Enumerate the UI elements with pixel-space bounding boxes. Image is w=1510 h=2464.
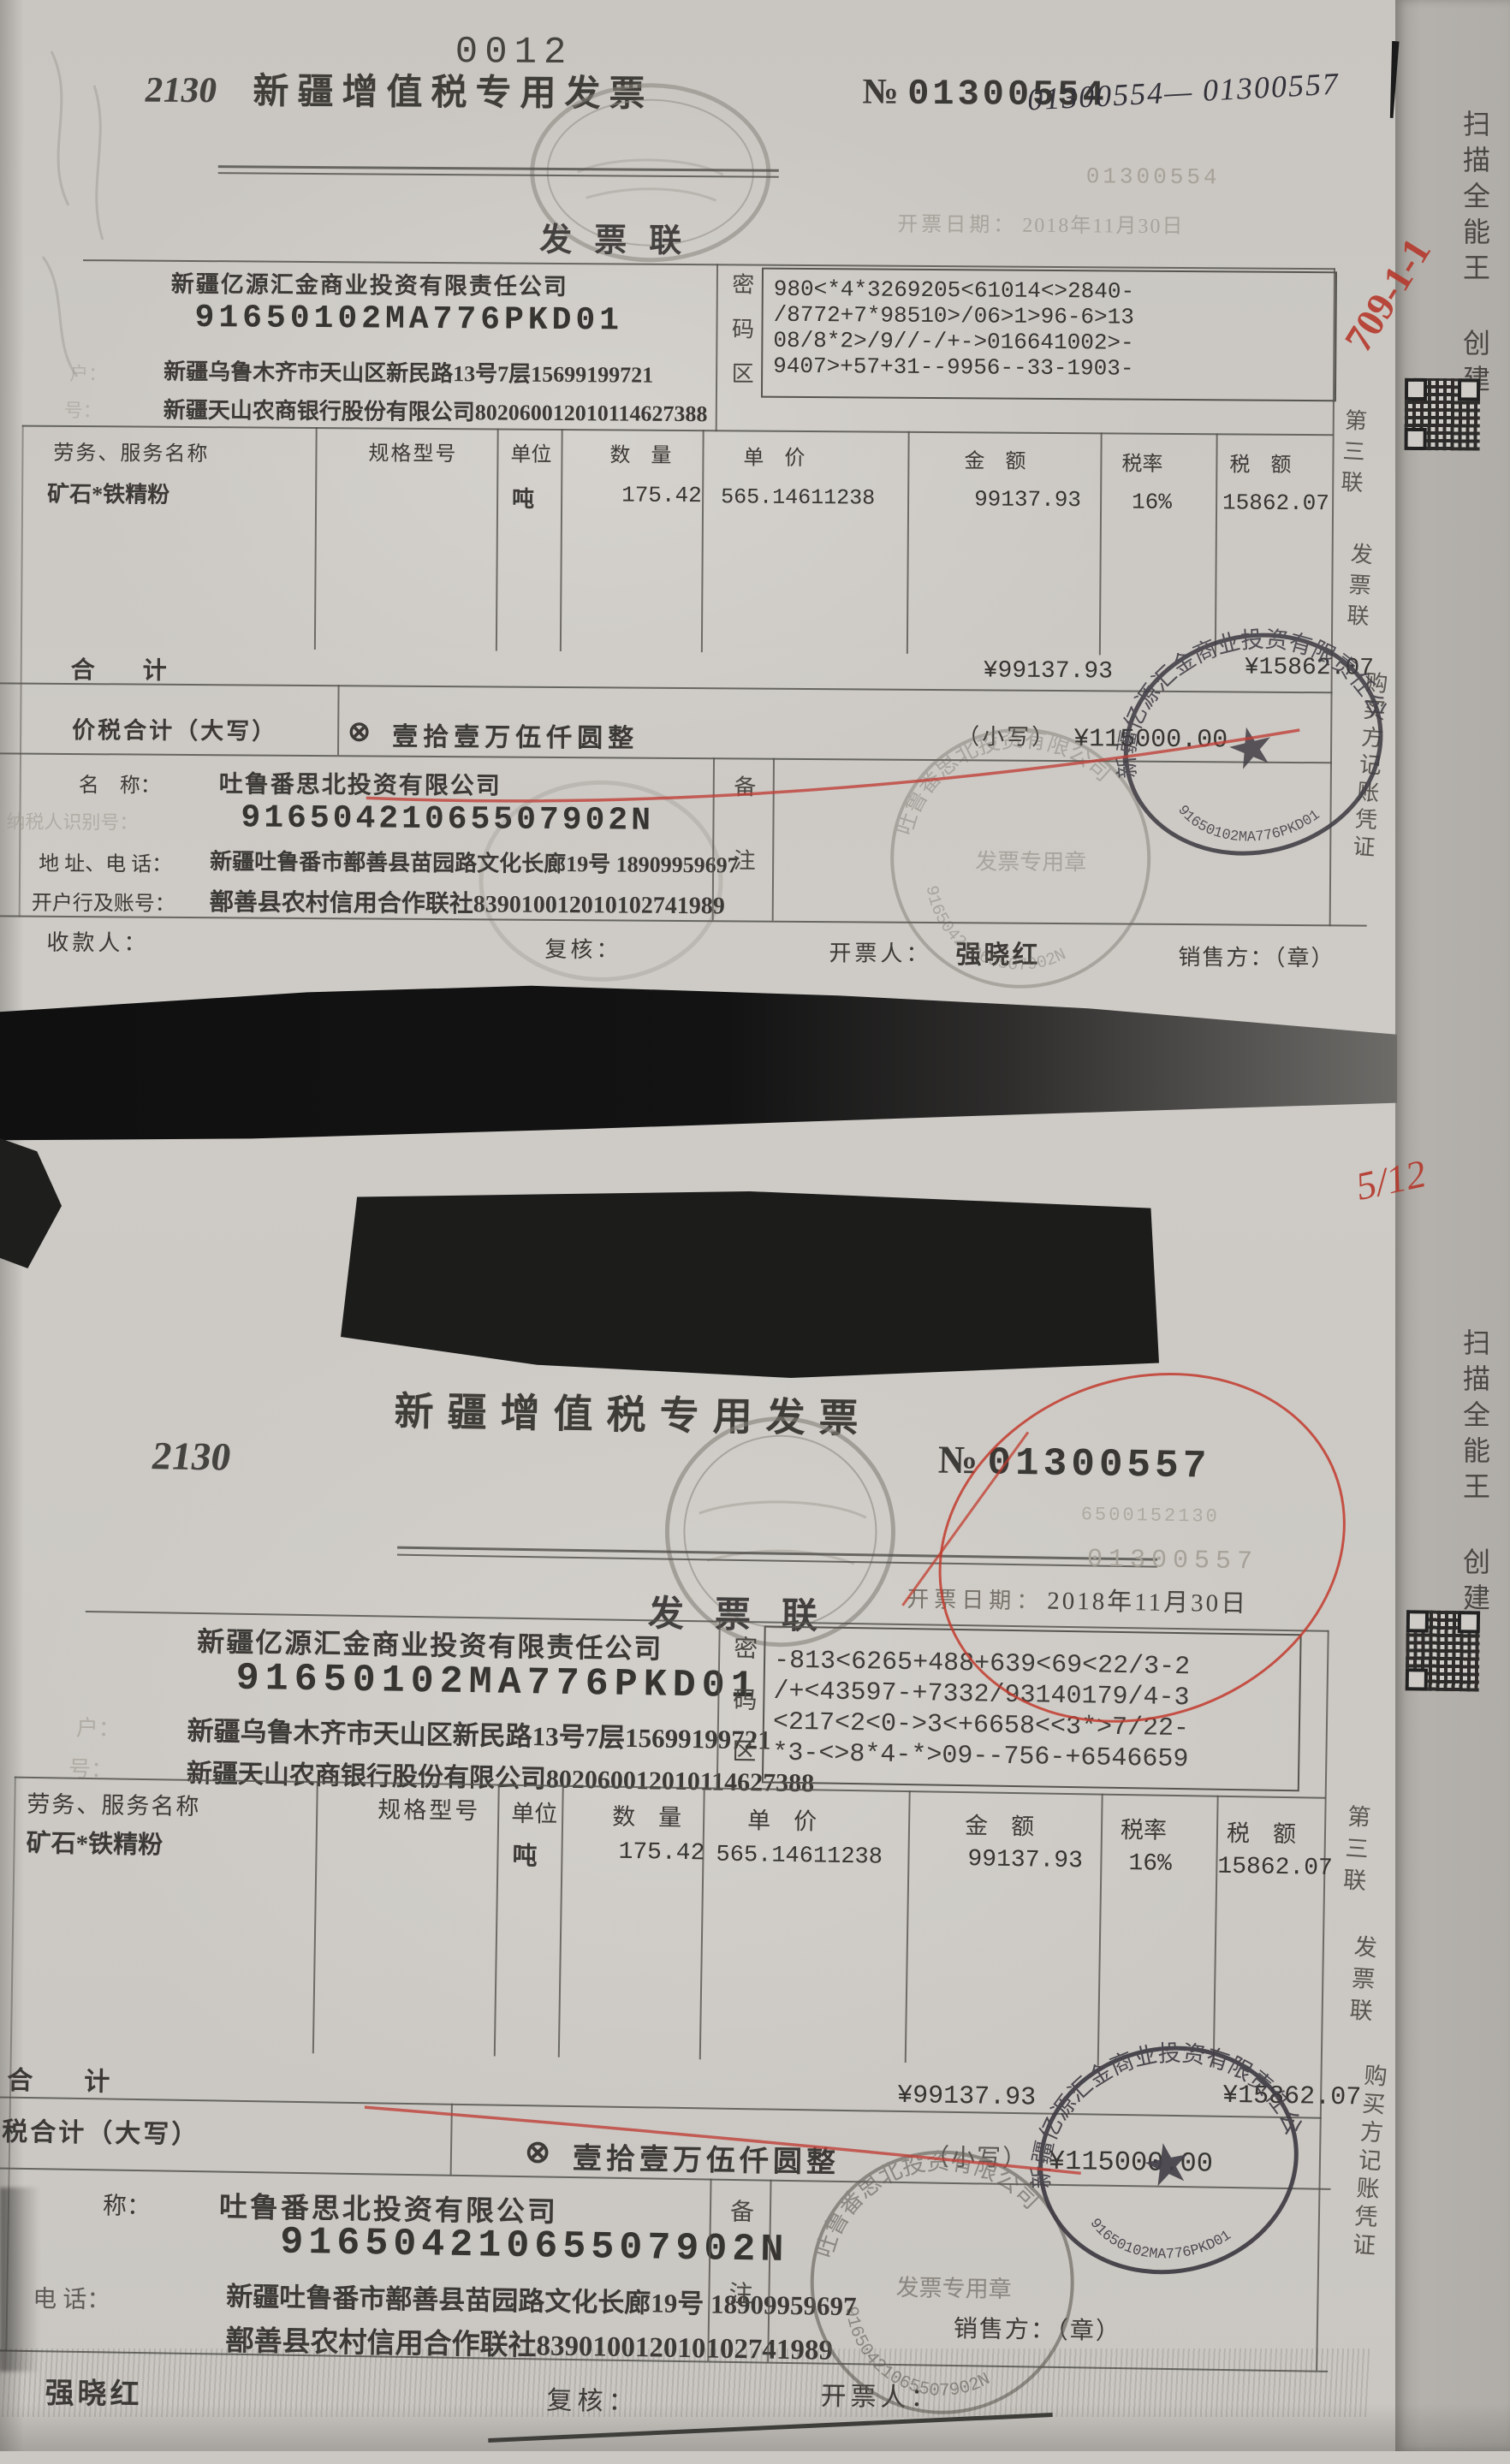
- item-qty-2: 175.42: [618, 1839, 704, 1867]
- seller-taxid-2: 91650421065507902N: [280, 2221, 789, 2272]
- margin-copy2-2: 发票联: [1340, 1933, 1381, 2055]
- col-amount-2: 金 额: [965, 1807, 1035, 1841]
- remark-label-2: 备注: [721, 2199, 758, 2345]
- col-spec-2: 规格型号: [377, 1790, 481, 1826]
- form-code-2: 2130: [149, 1433, 235, 1479]
- red-line-2: [364, 2092, 1084, 2188]
- seller-name-label-2: 称：: [103, 2187, 152, 2222]
- col-taxrate-2: 税率: [1121, 1811, 1168, 1845]
- seller-address-2: 新疆吐鲁番市鄯善县苗园路文化长廊19号 18909959697: [226, 2275, 857, 2324]
- tcol-2e: [905, 1790, 911, 2063]
- svg-text:91650102MA776PKD01: 91650102MA776PKD01: [1085, 2191, 1236, 2278]
- item-amount-2: 99137.93: [967, 1846, 1083, 1874]
- col-unit-2: 单位: [511, 1795, 558, 1829]
- col-tax-2: 税 额: [1227, 1814, 1297, 1849]
- buyer-taxid-2: 91650102MA776PKD01: [235, 1657, 760, 1709]
- tcol-2d: [699, 1787, 705, 2059]
- buyer-bank-2: 新疆天山农商银行股份有限公司802060012010114627388: [187, 1752, 815, 1800]
- item-name-2: 矿石*铁精粉: [26, 1823, 163, 1861]
- tcol-2f: [1097, 1794, 1103, 2066]
- seller-addr-label-2: 电 话：: [33, 2280, 111, 2315]
- oval-stamp-star: ★: [1137, 2129, 1198, 2200]
- item-unit-2: 吨: [512, 1836, 538, 1872]
- left-edge-smudge: [0, 2188, 39, 2372]
- round-stamp-type-text: 发票专用章: [895, 2275, 1011, 2302]
- qr-finder: [1406, 1668, 1428, 1690]
- grand-total-label-2: 价税合计（大写）: [0, 2110, 200, 2151]
- col-qty-2: 数 量: [612, 1798, 682, 1832]
- col-price-2: 单 价: [747, 1802, 817, 1836]
- invoice-2: 2130 新疆增值税专用发票 发票联 № 01300557 6500152130…: [0, 0, 1510, 2464]
- tcol-2c: [558, 1785, 564, 2057]
- margin-copy1-2: 第三联: [1334, 1803, 1375, 1925]
- buyer-address-2: 新疆乌鲁木齐市天山区新民路13号7层15699199721: [187, 1709, 771, 1757]
- qr-finder: [1406, 1610, 1429, 1632]
- oval-stamp-number-text: 91650102MA776PKD01: [1085, 2191, 1236, 2278]
- qr-code-2: [1406, 1610, 1480, 1691]
- item-price-2: 565.14611238: [716, 1843, 883, 1871]
- qr-finder: [1458, 1611, 1480, 1633]
- password-col-label-2: 密码区: [724, 1636, 761, 1782]
- buyer-frag-a-2: 户：: [75, 1711, 121, 1743]
- item-taxrate-2: 16%: [1128, 1850, 1172, 1878]
- tcol-2a: [312, 1781, 318, 2053]
- bottom-shadow: [0, 2403, 1510, 2451]
- total-label-2: 合 计: [7, 2059, 110, 2099]
- tcol-2b: [494, 1784, 500, 2057]
- item-tax-2: 15862.07: [1217, 1854, 1333, 1882]
- col-name-2: 劳务、服务名称: [27, 1785, 201, 1821]
